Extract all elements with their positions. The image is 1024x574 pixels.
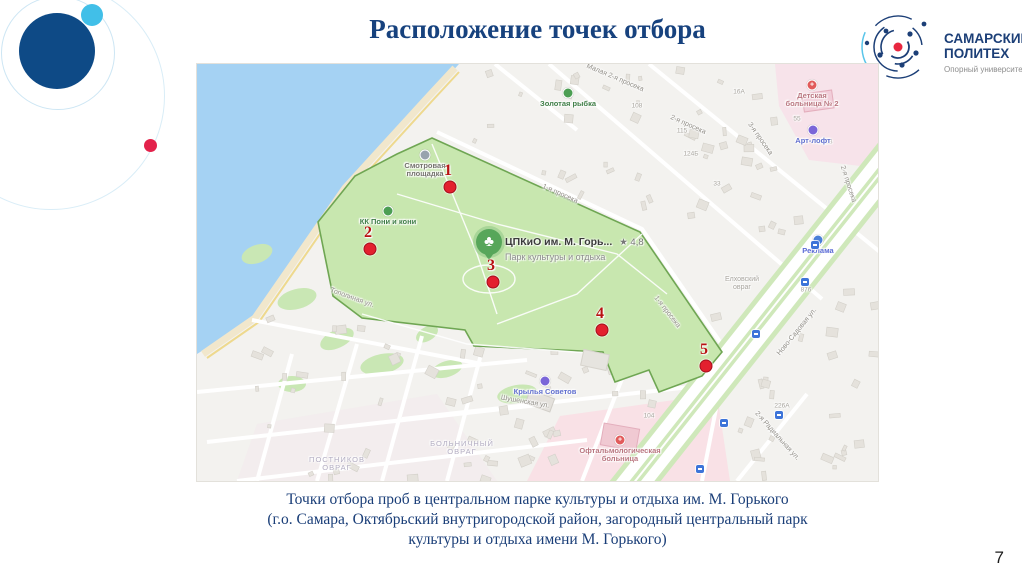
sample-point-number: 5: [700, 341, 708, 359]
page-number: 7: [995, 548, 1004, 568]
poi-green-icon: [563, 88, 574, 99]
park-poi-subtitle: Парк культуры и отдыха: [505, 252, 644, 262]
sample-point-number: 1: [444, 162, 452, 180]
house-number: 226А: [774, 403, 789, 410]
sample-point-2: [364, 243, 377, 256]
poi-label: Золотая рыбка: [540, 100, 596, 108]
logo-title-line2: ПОЛИТЕХ: [944, 46, 1009, 61]
street-label: Ново-Садовая ул.: [776, 307, 818, 357]
street-label: Малая 2-я просека: [585, 64, 644, 93]
poi-label: Крылья Советов: [514, 388, 577, 396]
bus-stop-icon: [775, 411, 783, 419]
street-label: Тополиная ул.: [329, 287, 375, 309]
logo-title-line1: САМАРСКИЙ: [944, 31, 1022, 46]
area-label: ПОСТНИКОВОВРАГ: [309, 456, 365, 472]
park-poi-title: ЦПКиО им. М. Горь...: [505, 236, 612, 248]
street-label: 2-я просека: [669, 114, 707, 136]
sample-point-1: [444, 181, 457, 194]
park-poi-marker: ♣: [476, 229, 502, 255]
house-number: 33: [713, 181, 720, 188]
poi-label: Детскаябольница № 2: [785, 92, 838, 108]
bus-stop-icon: [752, 330, 760, 338]
presentation-slide: Расположение точек отбора САМАРСКИЙ ПОЛИ…: [0, 0, 1024, 574]
sample-point-3: [487, 276, 500, 289]
street-label: 3-я просека: [746, 121, 774, 156]
sample-point-number: 4: [596, 305, 604, 323]
house-number: 108: [632, 103, 643, 110]
caption-line-2: (г.о. Самара, Октябрьский внутригородско…: [157, 510, 918, 530]
area-label: Елховскийовраг: [725, 276, 759, 292]
park-poi-rating: ★ 4,8: [619, 237, 643, 248]
sample-point-number: 2: [364, 224, 372, 242]
house-number: 162В: [817, 139, 832, 146]
sample-point-number: 3: [487, 257, 495, 275]
tree-icon: ♣: [484, 233, 494, 250]
poi-label: Арт-лофт: [795, 137, 830, 145]
house-number: 115: [677, 128, 687, 135]
street-label: 1-я просека: [541, 183, 579, 205]
sample-point-5: [700, 360, 713, 373]
street-label: 2-я просека: [839, 165, 857, 203]
area-label: БОЛЬНИЧНЫЙОВРАГ: [430, 440, 494, 456]
park-map: ♣ ЦПКиО им. М. Горь...★ 4,8 Парк культур…: [197, 64, 878, 481]
poi-red-icon: +: [615, 435, 626, 446]
sample-point-4: [596, 324, 609, 337]
page-title: Расположение точек отбора: [197, 14, 878, 45]
bus-stop-icon: [696, 465, 704, 473]
bus-stop-icon: [801, 278, 809, 286]
street-label: Шушенская ул.: [500, 394, 549, 409]
decor-circle-skyblue: [81, 4, 103, 26]
decor-dot-red: [144, 139, 157, 152]
bus-stop-icon: [811, 241, 819, 249]
street-label: 1-я просека: [653, 295, 682, 329]
house-number: 876: [801, 287, 812, 294]
poi-green-icon: [383, 206, 394, 217]
house-number: 104: [644, 413, 655, 420]
caption-line-3: культуры и отдыха имени М. Горького): [157, 530, 918, 550]
bus-stop-icon: [720, 419, 728, 427]
caption-line-1: Точки отбора проб в центральном парке ку…: [157, 490, 918, 510]
poi-label: Смотроваяплощадка: [404, 162, 445, 178]
map-overlay: ♣ ЦПКиО им. М. Горь...★ 4,8 Парк культур…: [197, 64, 878, 481]
poi-red-icon: +: [807, 80, 818, 91]
logo-subtitle: Опорный университет: [944, 65, 1022, 74]
poi-gray-icon: [420, 150, 431, 161]
house-number: 124Б: [683, 151, 698, 158]
house-number: 55: [793, 116, 800, 123]
park-poi-label: ЦПКиО им. М. Горь...★ 4,8 Парк культуры …: [505, 232, 644, 262]
poi-purple-icon: [540, 376, 551, 387]
decor-circle-navy: [19, 13, 95, 89]
house-number: 16А: [733, 89, 745, 96]
poi-label: Офтальмологическаябольница: [579, 447, 660, 463]
poi-purple-icon: [808, 125, 819, 136]
slide-caption: Точки отбора проб в центральном парке ку…: [157, 490, 918, 550]
